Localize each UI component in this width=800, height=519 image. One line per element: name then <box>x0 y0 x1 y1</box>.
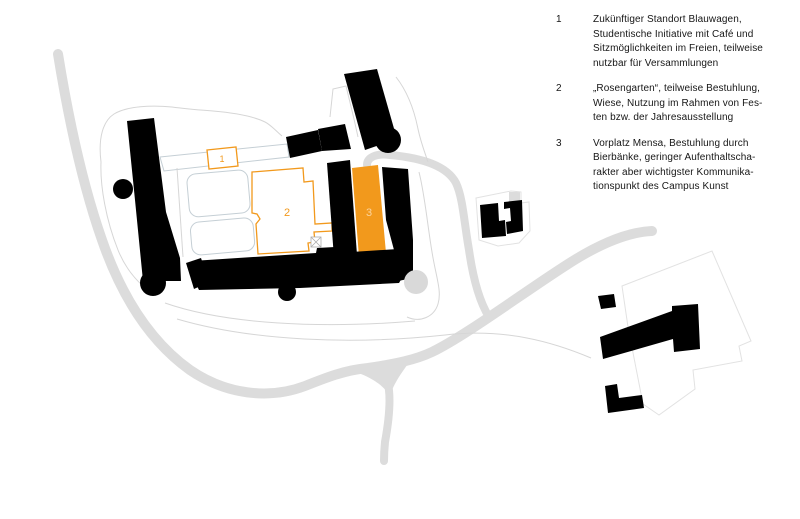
site-plan-page: 1 2 3 1 Zukünftiger Standort Blauwagen, … <box>0 0 800 519</box>
legend-entry-text: Vorplatz Mensa, Bestuhlung durch Bierbän… <box>593 137 790 195</box>
north-building-east-wing <box>318 124 351 151</box>
legend-entry-1: 1 Zukünftiger Standort Blauwagen, Studen… <box>556 13 790 71</box>
south-building-apse <box>278 283 296 301</box>
north-building-west-wing <box>286 130 322 158</box>
south-building <box>192 247 405 290</box>
small-complex-west <box>480 203 506 238</box>
area-3-label: 3 <box>366 207 372 219</box>
mensa-building <box>327 160 357 258</box>
gray-plaza-circle <box>404 270 428 294</box>
stair-symbol <box>311 237 321 247</box>
legend-entry-3: 3 Vorplatz Mensa, Bestuhlung durch Bierb… <box>556 137 790 195</box>
legend-entry-text: Zukünftiger Standort Blauwagen, Studenti… <box>593 13 790 71</box>
legend-entry-2: 2 „Rosengarten“, teilweise Bestuhlung, W… <box>556 82 790 126</box>
far-east-l-building <box>605 384 644 413</box>
legend-entry-number: 2 <box>556 82 593 126</box>
west-building-round-end <box>140 270 166 296</box>
area-1-label: 1 <box>219 154 224 164</box>
legend-entry-number: 1 <box>556 13 593 71</box>
south-road-branch <box>384 377 389 461</box>
small-complex-east <box>504 200 523 234</box>
legend-entry-text: „Rosengarten“, teilweise Bestuhlung, Wie… <box>593 82 790 126</box>
far-east-building <box>600 304 700 359</box>
west-building <box>127 118 181 281</box>
west-building-tower <box>113 179 133 199</box>
legend-entry-number: 3 <box>556 137 593 195</box>
far-east-building-stub <box>598 294 616 309</box>
northeast-building-rotunda <box>375 127 401 153</box>
legend: 1 Zukünftiger Standort Blauwagen, Studen… <box>556 13 790 206</box>
area-2-label: 2 <box>284 207 290 219</box>
